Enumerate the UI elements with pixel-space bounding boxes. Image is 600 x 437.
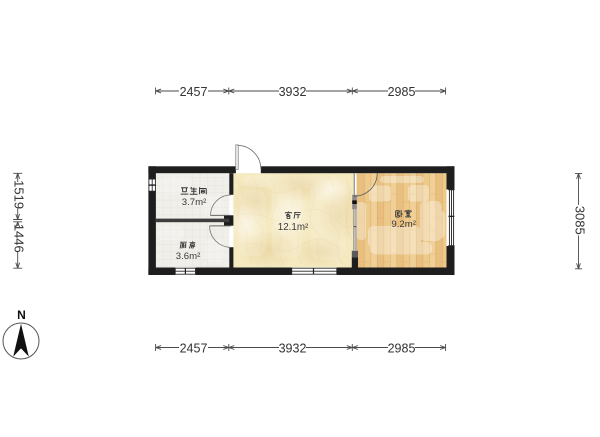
svg-text:1519: 1519 bbox=[11, 180, 26, 209]
svg-text:9.2m²: 9.2m² bbox=[391, 219, 416, 230]
svg-text:3085: 3085 bbox=[572, 206, 587, 235]
svg-text:3.6m²: 3.6m² bbox=[176, 251, 201, 262]
svg-text:3932: 3932 bbox=[279, 342, 307, 356]
svg-text:2457: 2457 bbox=[180, 342, 208, 356]
svg-text:3932: 3932 bbox=[279, 85, 307, 99]
svg-text:1446: 1446 bbox=[11, 224, 26, 253]
svg-text:2985: 2985 bbox=[388, 85, 416, 99]
svg-text:3.7m²: 3.7m² bbox=[182, 197, 207, 208]
svg-text:2457: 2457 bbox=[180, 85, 208, 99]
svg-text:12.1m²: 12.1m² bbox=[278, 222, 309, 233]
svg-text:2985: 2985 bbox=[388, 342, 416, 356]
svg-text:N: N bbox=[17, 308, 26, 322]
